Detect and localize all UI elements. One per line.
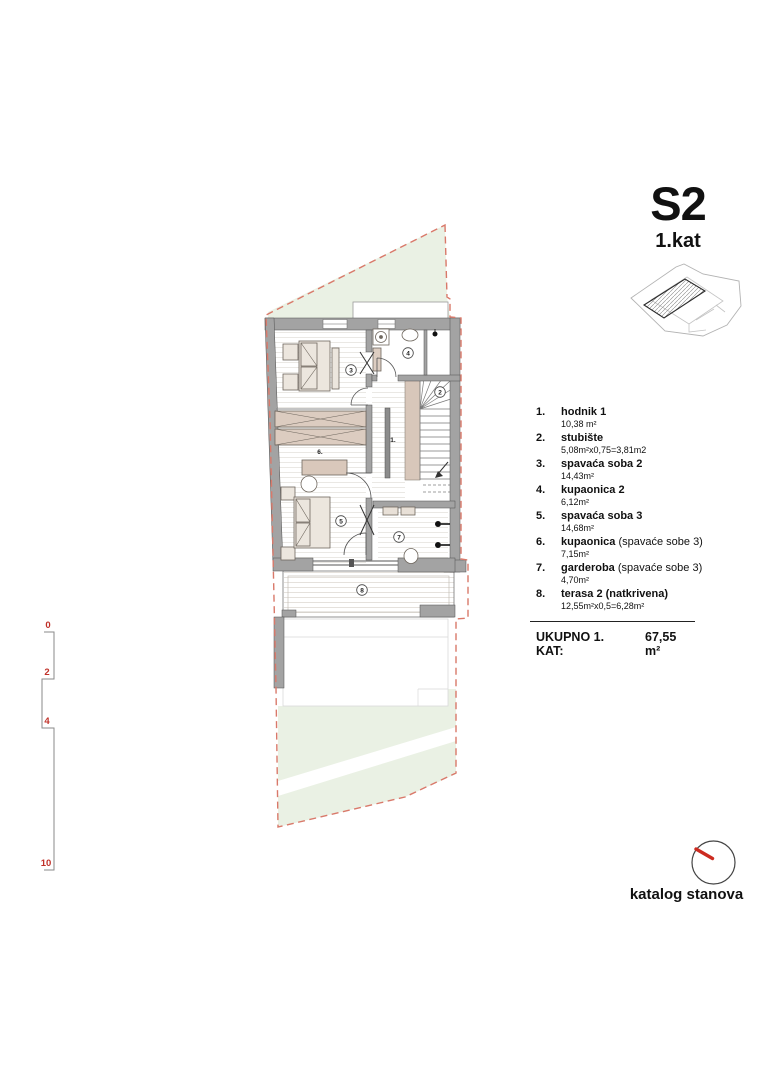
legend-num: 8.: [536, 588, 561, 601]
total-label: UKUPNO 1. KAT:: [536, 630, 627, 658]
svg-text:3: 3: [349, 367, 353, 374]
svg-text:5: 5: [339, 518, 343, 525]
svg-text:8: 8: [360, 587, 364, 594]
legend-item: 6. kupaonica (spavaće sobe 3) 7,15m²: [530, 536, 695, 560]
legend-note: (spavaće sobe 3): [618, 536, 702, 548]
north-circle: [692, 841, 735, 884]
svg-text:2: 2: [438, 389, 442, 396]
catalog-label: katalog stanova: [624, 886, 749, 903]
legend-total: UKUPNO 1. KAT: 67,55 m²: [530, 621, 695, 658]
legend-name: hodnik 1: [561, 406, 606, 418]
legend-area: 12,55m²x0,5=6,28m²: [561, 601, 695, 612]
legend-name: garderoba: [561, 562, 615, 574]
canopy-outline: [353, 302, 448, 319]
legend-name: terasa 2 (natkrivena): [561, 588, 668, 600]
legend-item: 3. spavaća soba 2 14,43m²: [530, 458, 695, 482]
basin: [404, 549, 418, 564]
legend-name: spavaća soba 2: [561, 458, 642, 470]
scale-tick-4: 4: [44, 716, 50, 727]
page-root: { "title": { "code": "S2", "floor": "1.k…: [0, 0, 765, 1080]
legend-item: 5. spavaća soba 3 14,68m²: [530, 510, 695, 534]
legend-name: stubište: [561, 432, 603, 444]
room-label-garderoba: 7: [394, 532, 405, 543]
north-indicator: [690, 839, 737, 886]
legend-area: 14,43m²: [561, 471, 695, 482]
legend-area: 4,70m²: [561, 575, 702, 586]
legend-num: 3.: [536, 458, 561, 471]
legend-num: 6.: [536, 536, 561, 549]
svg-text:7: 7: [397, 534, 401, 541]
room-label-spavaca-soba-2: 3: [346, 365, 357, 376]
unit-code: S2: [598, 180, 758, 227]
shower-head: [433, 332, 438, 337]
legend-item: 4. kupaonica 2 6,12m²: [530, 484, 695, 508]
room-label-kupaonica-3: 6.: [317, 449, 323, 456]
floor-label: 1.kat: [598, 230, 758, 253]
sink: [402, 329, 418, 341]
room-label-stubiste: 2: [435, 387, 446, 398]
room-label-hodnik: 1.: [390, 437, 396, 444]
legend-num: 1.: [536, 406, 561, 419]
legend-item: 8. terasa 2 (natkrivena) 12,55m²x0,5=6,2…: [530, 588, 695, 612]
legend-name: kupaonica 2: [561, 484, 625, 496]
legend-num: 5.: [536, 510, 561, 523]
legend-item: 2. stubište 5,08m²x0,75=3,81m2: [530, 432, 695, 456]
scale-bar: 0 2 4 10: [36, 618, 66, 880]
legend-name: spavaća soba 3: [561, 510, 642, 522]
scale-tick-10: 10: [41, 858, 52, 869]
legend-name: kupaonica: [561, 536, 615, 548]
legend-area: 14,68m²: [561, 523, 695, 534]
site-map: [626, 260, 748, 356]
dimension-marks: [423, 485, 452, 492]
floor-plan: 3 4 2 5 7 8 1. 6.: [252, 212, 478, 844]
legend-area: 5,08m²x0,75=3,81m2: [561, 445, 695, 456]
legend-item: 1. hodnik 1 10,38 m²: [530, 406, 695, 430]
legend-note: (spavaće sobe 3): [618, 562, 702, 574]
lower-level-outline: [283, 619, 448, 706]
stool: [301, 476, 317, 492]
vanity: [302, 460, 347, 475]
title-block: S2 1.kat: [598, 180, 758, 253]
total-value: 67,55 m²: [645, 630, 691, 658]
room-label-kupaonica-2: 4: [403, 348, 414, 359]
scale-tick-2: 2: [44, 667, 49, 678]
room-label-terasa: 8: [357, 585, 368, 596]
legend-num: 7.: [536, 562, 561, 575]
svg-text:4: 4: [406, 350, 410, 357]
legend-item: 7. garderoba (spavaće sobe 3) 4,70m²: [530, 562, 695, 586]
legend-num: 4.: [536, 484, 561, 497]
room-label-spavaca-soba-3: 5: [336, 516, 347, 527]
legend-area: 10,38 m²: [561, 419, 695, 430]
legend-area: 6,12m²: [561, 497, 695, 508]
scale-tick-0: 0: [45, 620, 50, 631]
legend-num: 2.: [536, 432, 561, 445]
legend-area: 7,15m²: [561, 549, 703, 560]
room-legend: 1. hodnik 1 10,38 m² 2. stubište 5,08m²x…: [530, 406, 695, 658]
